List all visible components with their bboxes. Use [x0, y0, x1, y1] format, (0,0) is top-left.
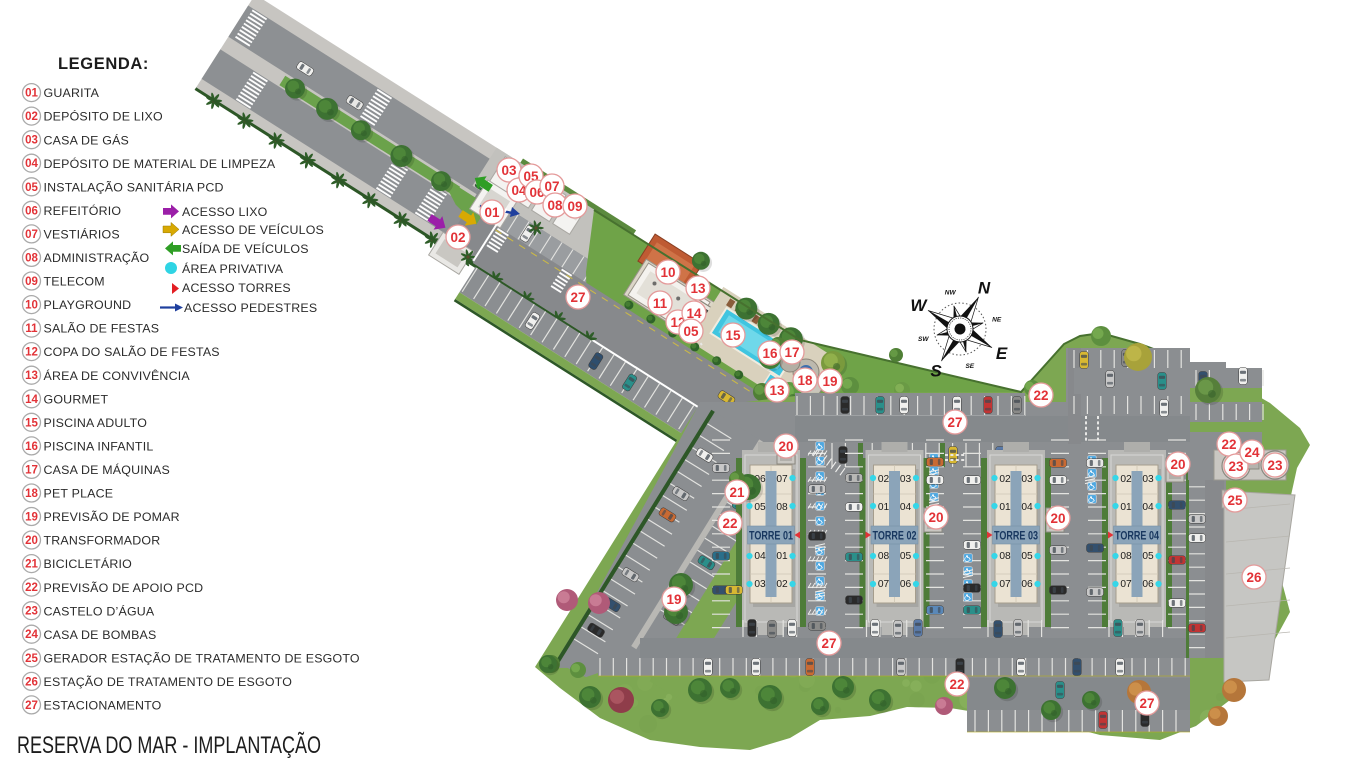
svg-text:25: 25	[1227, 493, 1243, 508]
svg-text:08: 08	[547, 198, 563, 213]
svg-text:22: 22	[949, 677, 964, 692]
svg-text:S: S	[930, 362, 942, 381]
svg-text:PREVISÃO DE APOIO PCD: PREVISÃO DE APOIO PCD	[44, 581, 204, 595]
svg-text:25: 25	[25, 653, 38, 665]
svg-text:03: 03	[1021, 474, 1033, 485]
svg-text:22: 22	[25, 582, 38, 594]
svg-text:24: 24	[25, 629, 38, 641]
svg-text:ACESSO TORRES: ACESSO TORRES	[182, 281, 291, 295]
svg-text:SW: SW	[918, 336, 929, 343]
svg-text:04: 04	[900, 502, 912, 513]
svg-text:09: 09	[567, 199, 582, 214]
svg-text:05: 05	[754, 502, 766, 513]
svg-text:23: 23	[1228, 459, 1244, 474]
svg-text:W: W	[910, 296, 928, 315]
svg-text:22: 22	[1033, 388, 1048, 403]
svg-text:03: 03	[25, 135, 38, 147]
svg-text:01: 01	[1120, 502, 1132, 513]
svg-text:INSTALAÇÃO SANITÁRIA PCD: INSTALAÇÃO SANITÁRIA PCD	[44, 179, 224, 194]
svg-text:RESERVA DO MAR - IMPLANTAÇÃO: RESERVA DO MAR - IMPLANTAÇÃO	[17, 732, 321, 759]
svg-text:15: 15	[25, 417, 38, 429]
svg-text:ÁREA PRIVATIVA: ÁREA PRIVATIVA	[182, 261, 284, 276]
svg-text:27: 27	[25, 700, 38, 712]
svg-text:ACESSO PEDESTRES: ACESSO PEDESTRES	[184, 301, 317, 315]
svg-text:BICICLETÁRIO: BICICLETÁRIO	[44, 556, 133, 571]
svg-text:05: 05	[1021, 551, 1033, 562]
svg-text:11: 11	[25, 323, 38, 335]
svg-text:SALÃO DE FESTAS: SALÃO DE FESTAS	[44, 322, 160, 336]
svg-text:PISCINA INFANTIL: PISCINA INFANTIL	[44, 440, 154, 454]
svg-text:18: 18	[797, 373, 813, 388]
svg-text:22: 22	[722, 516, 737, 531]
svg-text:24: 24	[1244, 445, 1260, 460]
svg-text:CASA DE GÁS: CASA DE GÁS	[44, 132, 130, 147]
svg-text:21: 21	[729, 485, 745, 500]
svg-text:20: 20	[928, 510, 943, 525]
svg-text:13: 13	[25, 370, 38, 382]
svg-text:SAÍDA DE VEÍCULOS: SAÍDA DE VEÍCULOS	[182, 241, 309, 256]
svg-text:08: 08	[999, 551, 1011, 562]
svg-text:15: 15	[725, 328, 741, 343]
svg-text:08: 08	[1120, 551, 1132, 562]
svg-text:PET PLACE: PET PLACE	[44, 487, 114, 501]
svg-text:10: 10	[25, 300, 38, 312]
svg-text:NW: NW	[945, 290, 957, 297]
svg-text:E: E	[996, 344, 1008, 363]
svg-text:GOURMET: GOURMET	[44, 392, 109, 406]
svg-text:01: 01	[999, 502, 1011, 513]
svg-text:13: 13	[690, 281, 706, 296]
svg-text:05: 05	[683, 324, 699, 339]
svg-text:05: 05	[1142, 551, 1154, 562]
svg-text:04: 04	[25, 158, 38, 170]
svg-text:07: 07	[999, 579, 1011, 590]
svg-text:NE: NE	[992, 316, 1002, 323]
svg-text:DEPÓSITO DE LIXO: DEPÓSITO DE LIXO	[44, 109, 163, 124]
svg-text:26: 26	[1246, 570, 1262, 585]
svg-text:TORRE 04: TORRE 04	[1115, 531, 1159, 543]
svg-text:CASA DE BOMBAS: CASA DE BOMBAS	[44, 628, 157, 642]
svg-text:COPA DO SALÃO DE FESTAS: COPA DO SALÃO DE FESTAS	[44, 345, 220, 359]
svg-text:10: 10	[660, 265, 675, 280]
svg-text:DEPÓSITO DE MATERIAL DE LIMPEZ: DEPÓSITO DE MATERIAL DE LIMPEZA	[44, 156, 276, 171]
svg-text:VESTIÁRIOS: VESTIÁRIOS	[44, 227, 120, 242]
svg-text:20: 20	[778, 439, 793, 454]
svg-text:PREVISÃO DE POMAR: PREVISÃO DE POMAR	[44, 510, 180, 524]
svg-text:SE: SE	[965, 363, 974, 370]
svg-text:ESTACIONAMENTO: ESTACIONAMENTO	[44, 699, 162, 713]
svg-text:27: 27	[821, 636, 836, 651]
svg-text:23: 23	[1267, 458, 1283, 473]
svg-text:02: 02	[1120, 474, 1132, 485]
svg-text:07: 07	[878, 579, 890, 590]
svg-text:03: 03	[900, 474, 912, 485]
svg-text:05: 05	[900, 551, 912, 562]
svg-text:03: 03	[501, 163, 517, 178]
svg-text:02: 02	[25, 111, 38, 123]
svg-text:TELECOM: TELECOM	[44, 275, 105, 289]
svg-text:06: 06	[900, 579, 912, 590]
svg-text:19: 19	[25, 512, 38, 524]
svg-text:27: 27	[947, 415, 962, 430]
svg-text:07: 07	[1120, 579, 1132, 590]
svg-text:ESTAÇÃO DE TRATAMENTO DE ESGOT: ESTAÇÃO DE TRATAMENTO DE ESGOTO	[44, 675, 293, 689]
svg-text:03: 03	[754, 579, 766, 590]
svg-text:02: 02	[999, 474, 1011, 485]
svg-text:04: 04	[1021, 502, 1033, 513]
svg-text:08: 08	[878, 551, 890, 562]
svg-text:TORRE 03: TORRE 03	[994, 531, 1038, 543]
svg-text:11: 11	[653, 296, 668, 311]
svg-text:13: 13	[769, 383, 785, 398]
svg-text:09: 09	[25, 276, 38, 288]
svg-text:PLAYGROUND: PLAYGROUND	[44, 298, 132, 312]
svg-text:07: 07	[544, 179, 559, 194]
svg-text:LEGENDA:: LEGENDA:	[58, 55, 149, 73]
svg-text:27: 27	[570, 290, 585, 305]
svg-text:23: 23	[25, 606, 38, 618]
svg-text:REFEITÓRIO: REFEITÓRIO	[44, 203, 122, 218]
svg-text:ADMINISTRAÇÃO: ADMINISTRAÇÃO	[44, 251, 150, 265]
svg-text:20: 20	[1050, 511, 1065, 526]
svg-text:06: 06	[1142, 579, 1154, 590]
svg-text:22: 22	[1221, 437, 1236, 452]
svg-text:CASTELO D’ÁGUA: CASTELO D’ÁGUA	[44, 603, 155, 618]
svg-text:01: 01	[484, 205, 500, 220]
svg-text:14: 14	[25, 394, 38, 406]
svg-text:16: 16	[25, 441, 38, 453]
svg-text:20: 20	[25, 535, 38, 547]
svg-text:ACESSO DE VEÍCULOS: ACESSO DE VEÍCULOS	[182, 222, 324, 237]
svg-text:27: 27	[1139, 696, 1154, 711]
svg-text:02: 02	[450, 230, 465, 245]
svg-text:01: 01	[878, 502, 890, 513]
svg-text:17: 17	[25, 464, 38, 476]
svg-text:18: 18	[25, 488, 38, 500]
svg-text:19: 19	[666, 592, 681, 607]
svg-text:07: 07	[776, 474, 788, 485]
svg-text:01: 01	[25, 88, 38, 100]
svg-text:16: 16	[762, 346, 778, 361]
svg-text:04: 04	[1142, 502, 1154, 513]
svg-text:19: 19	[822, 374, 837, 389]
svg-text:17: 17	[784, 345, 799, 360]
svg-text:12: 12	[25, 347, 38, 359]
svg-text:TRANSFORMADOR: TRANSFORMADOR	[44, 534, 161, 548]
svg-text:08: 08	[776, 502, 788, 513]
svg-text:05: 05	[25, 182, 38, 194]
svg-text:20: 20	[1170, 457, 1185, 472]
svg-text:TORRE 01: TORRE 01	[749, 531, 793, 543]
svg-text:08: 08	[25, 252, 38, 264]
svg-text:02: 02	[878, 474, 890, 485]
svg-text:21: 21	[25, 559, 38, 571]
svg-text:GERADOR ESTAÇÃO DE TRATAMENTO: GERADOR ESTAÇÃO DE TRATAMENTO DE ESGOTO	[44, 651, 360, 665]
svg-text:01: 01	[776, 551, 788, 562]
svg-text:07: 07	[25, 229, 38, 241]
svg-text:ACESSO LIXO: ACESSO LIXO	[182, 205, 268, 219]
svg-text:03: 03	[1142, 474, 1154, 485]
svg-text:GUARITA: GUARITA	[44, 86, 100, 100]
svg-text:06: 06	[25, 205, 38, 217]
svg-text:02: 02	[776, 579, 788, 590]
svg-text:PISCINA ADULTO: PISCINA ADULTO	[44, 416, 148, 430]
svg-text:26: 26	[25, 676, 38, 688]
svg-text:CASA DE MÁQUINAS: CASA DE MÁQUINAS	[44, 462, 170, 477]
svg-text:TORRE 02: TORRE 02	[873, 531, 917, 543]
svg-text:N: N	[978, 278, 991, 297]
svg-text:ÁREA DE CONVIVÊNCIA: ÁREA DE CONVIVÊNCIA	[44, 368, 191, 383]
svg-text:06: 06	[1021, 579, 1033, 590]
svg-text:04: 04	[754, 551, 766, 562]
